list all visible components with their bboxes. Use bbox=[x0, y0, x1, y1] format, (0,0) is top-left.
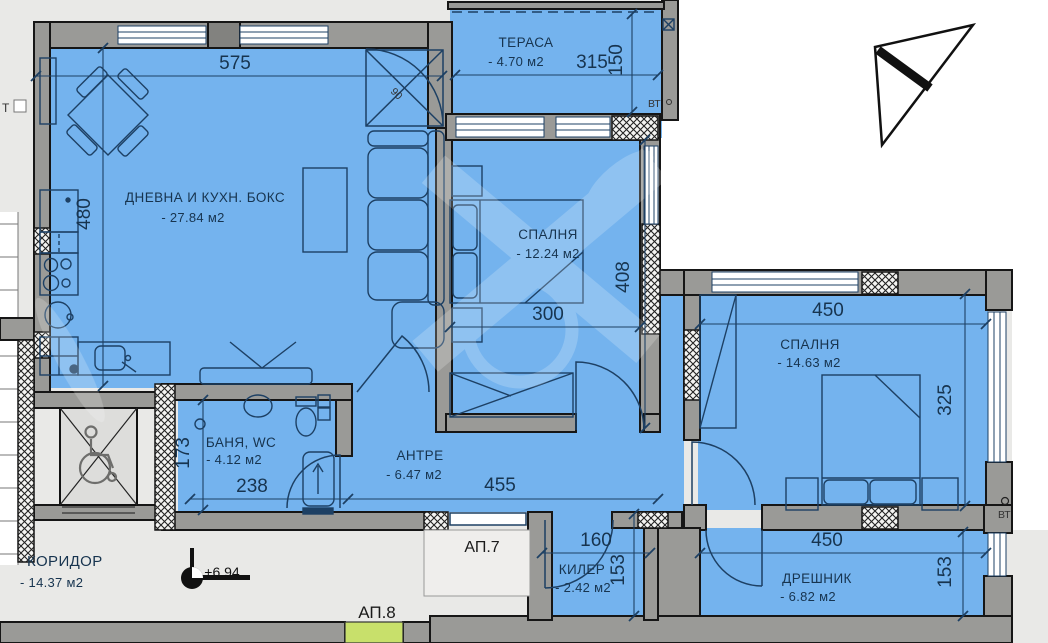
bath-area: - 4.12 м2 bbox=[206, 452, 262, 467]
dim-living-width: 575 bbox=[219, 53, 251, 74]
dim-closet-width: 160 bbox=[580, 530, 612, 551]
closet-area: - 2.42 м2 bbox=[555, 580, 611, 595]
dim-bath-height: 173 bbox=[173, 437, 194, 469]
walkin-name: ДРЕШНИК bbox=[782, 571, 852, 586]
apartment8-entrance-door bbox=[345, 622, 403, 643]
corridor-area: - 14.37 м2 bbox=[20, 575, 83, 590]
bedroom2-area: - 14.63 м2 bbox=[777, 355, 840, 370]
vt-terrace-label: ВТ bbox=[648, 98, 661, 110]
apartment8-label: АП.8 bbox=[358, 603, 396, 622]
hall-name: АНТРЕ bbox=[396, 448, 443, 463]
corridor-name: КОРИДОР bbox=[27, 553, 103, 570]
terrace-name: ТЕРАСА bbox=[499, 35, 554, 50]
dim-hall-width: 455 bbox=[484, 475, 516, 496]
dim-bedroom2-height: 325 bbox=[935, 384, 956, 416]
floor-level-label: +6.94 bbox=[204, 564, 240, 580]
bath-name: БАНЯ, WC bbox=[206, 435, 276, 450]
terrace-area: - 4.70 м2 bbox=[488, 54, 544, 69]
dim-bedroom1-width: 300 bbox=[532, 304, 564, 325]
elevator bbox=[60, 408, 137, 513]
hall-area: - 6.47 м2 bbox=[386, 467, 442, 482]
bedroom1-name: СПАЛНЯ bbox=[518, 227, 578, 242]
apartment7-door-leaf bbox=[450, 513, 526, 525]
stair-label-box bbox=[14, 100, 26, 112]
dim-terrace-height: 150 bbox=[606, 44, 627, 76]
dim-walkin-width: 450 bbox=[811, 530, 843, 551]
closet-name: КИЛЕР bbox=[559, 562, 605, 577]
apartment7-label: АП.7 bbox=[464, 539, 499, 556]
dim-walkin-height: 153 bbox=[935, 556, 956, 588]
bedroom1-area: - 12.24 м2 bbox=[516, 246, 579, 261]
dim-closet-height: 153 bbox=[608, 554, 629, 586]
walkin-area: - 6.82 м2 bbox=[780, 589, 836, 604]
vt-bedroom2-label: ВТ bbox=[998, 509, 1011, 521]
dim-bath-width: 238 bbox=[236, 476, 268, 497]
dim-bedroom2-width: 450 bbox=[812, 300, 844, 321]
dim-bedroom1-height: 408 bbox=[613, 261, 634, 293]
living-room-name: ДНЕВНА И КУХН. БОКС bbox=[125, 190, 285, 205]
dim-terrace-width: 315 bbox=[576, 52, 608, 73]
bedroom2-name: СПАЛНЯ bbox=[780, 337, 840, 352]
dim-living-height: 480 bbox=[74, 198, 95, 230]
floorplan-page: ДНЕВНА И КУХН. БОКС - 27.84 м2 ТЕРАСА - … bbox=[0, 0, 1048, 643]
floor-plan-svg: ДНЕВНА И КУХН. БОКС - 27.84 м2 ТЕРАСА - … bbox=[0, 0, 1048, 643]
living-room-area: - 27.84 м2 bbox=[161, 210, 224, 225]
stair-label: Т bbox=[2, 101, 10, 115]
